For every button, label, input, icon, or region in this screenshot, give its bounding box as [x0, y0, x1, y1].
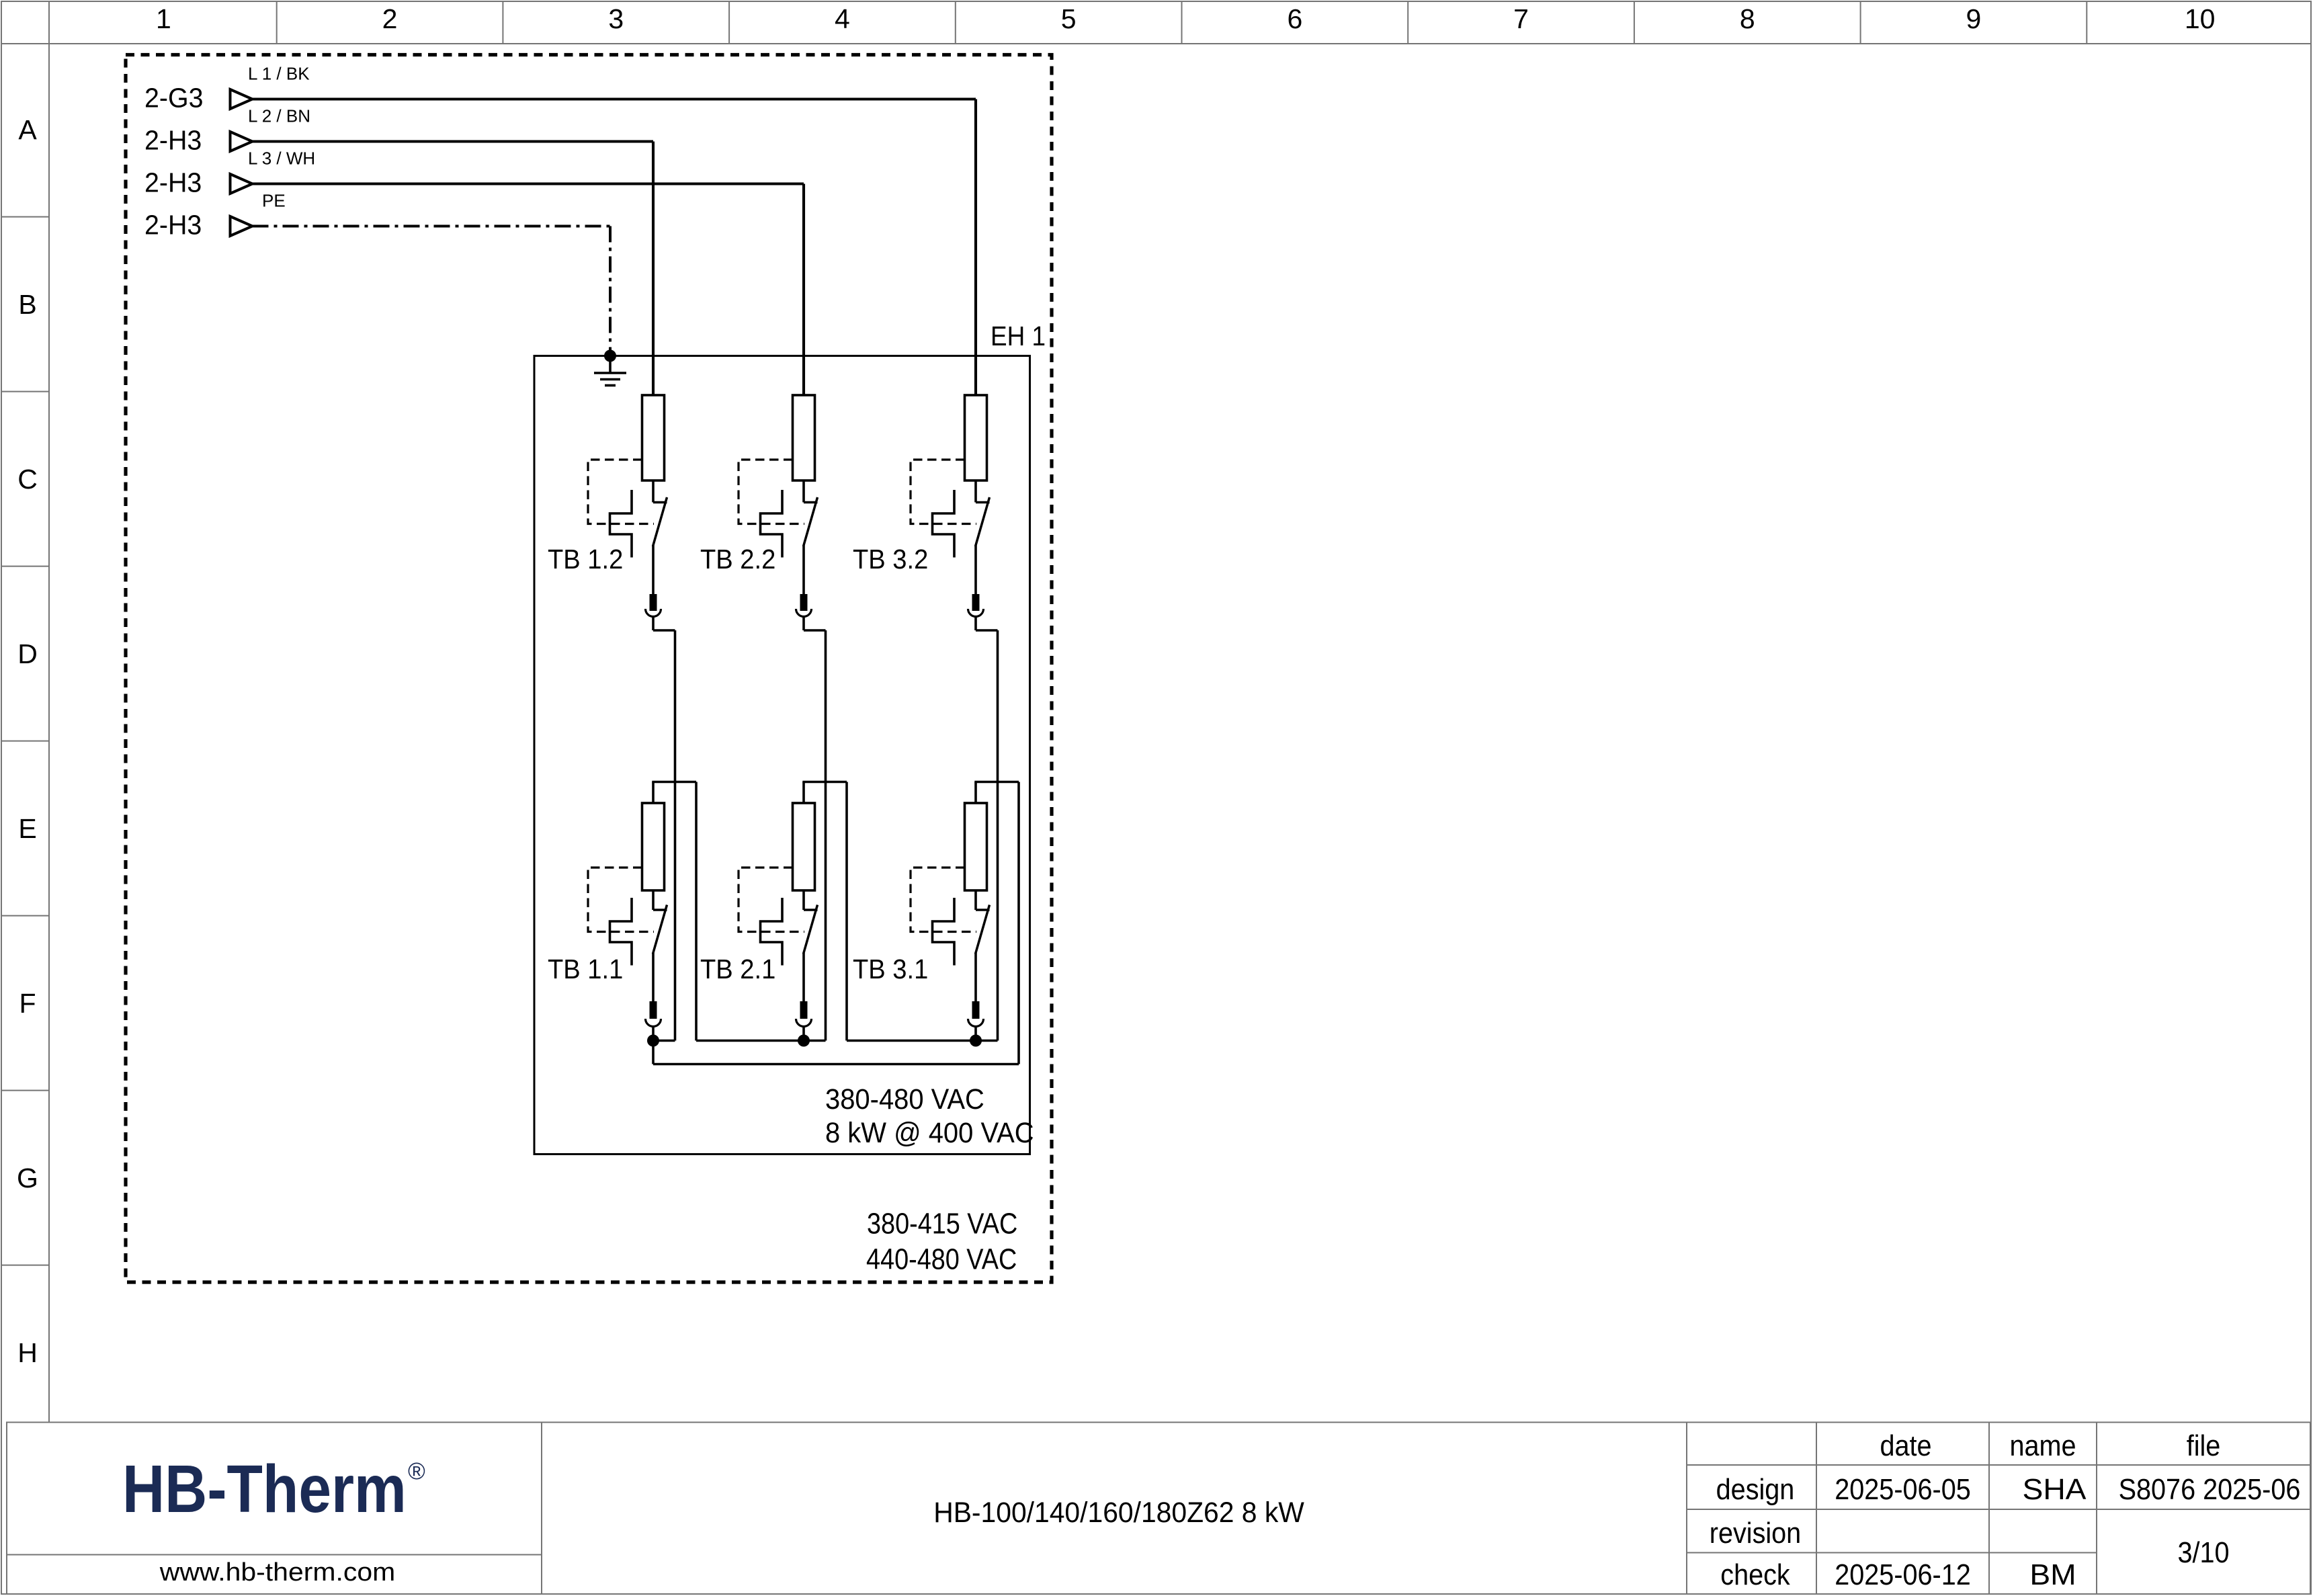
- svg-text:440-480 VAC: 440-480 VAC: [866, 1243, 1017, 1275]
- svg-text:2-H3: 2-H3: [144, 167, 202, 198]
- svg-text:HB-100/140/160/180Z62 8 kW: HB-100/140/160/180Z62 8 kW: [933, 1496, 1304, 1528]
- svg-text:TB 3.1: TB 3.1: [853, 954, 928, 985]
- svg-text:10: 10: [2185, 3, 2216, 34]
- svg-text:EH 1: EH 1: [991, 321, 1046, 351]
- svg-text:D: D: [17, 638, 38, 669]
- svg-text:2: 2: [382, 3, 398, 34]
- svg-text:9: 9: [1966, 3, 1982, 34]
- svg-text:H: H: [17, 1337, 38, 1368]
- svg-text:G: G: [17, 1163, 38, 1193]
- svg-text:TB 2.2: TB 2.2: [700, 544, 775, 575]
- svg-text:380-415 VAC: 380-415 VAC: [867, 1207, 1017, 1240]
- svg-text:B: B: [18, 289, 36, 320]
- svg-text:3/10: 3/10: [2177, 1536, 2229, 1568]
- svg-text:PE: PE: [262, 191, 286, 211]
- svg-text:2025-06-12: 2025-06-12: [1835, 1558, 1971, 1591]
- svg-text:2-H3: 2-H3: [144, 125, 202, 156]
- svg-text:TB 1.1: TB 1.1: [548, 954, 623, 985]
- svg-text:380-480 VAC: 380-480 VAC: [825, 1083, 984, 1115]
- svg-text:A: A: [18, 114, 37, 145]
- svg-text:file: file: [2187, 1429, 2221, 1462]
- svg-text:C: C: [17, 464, 38, 495]
- svg-text:E: E: [18, 813, 36, 844]
- svg-text:®: ®: [408, 1458, 425, 1484]
- svg-text:BM: BM: [2029, 1558, 2076, 1591]
- svg-text:F: F: [19, 988, 36, 1019]
- svg-text:www.hb-therm.com: www.hb-therm.com: [159, 1558, 396, 1586]
- svg-text:HB-Therm: HB-Therm: [122, 1452, 407, 1527]
- svg-text:L 1 / BK: L 1 / BK: [248, 64, 310, 84]
- svg-text:SHA: SHA: [2023, 1472, 2087, 1506]
- svg-text:TB 1.2: TB 1.2: [548, 544, 623, 575]
- svg-text:4: 4: [835, 3, 850, 34]
- svg-text:check: check: [1720, 1558, 1790, 1591]
- svg-text:6: 6: [1287, 3, 1302, 34]
- svg-text:TB 2.1: TB 2.1: [700, 954, 775, 985]
- svg-text:8: 8: [1740, 3, 1755, 34]
- svg-text:S8076 2025-06: S8076 2025-06: [2119, 1472, 2301, 1505]
- svg-text:7: 7: [1513, 3, 1529, 34]
- svg-text:5: 5: [1061, 3, 1077, 34]
- svg-text:2-H3: 2-H3: [144, 210, 202, 241]
- svg-text:L 3 / WH: L 3 / WH: [248, 149, 315, 169]
- svg-text:TB 3.2: TB 3.2: [853, 544, 928, 575]
- svg-text:1: 1: [156, 3, 171, 34]
- svg-text:2-G3: 2-G3: [144, 83, 203, 114]
- svg-text:date: date: [1880, 1429, 1931, 1462]
- svg-text:name: name: [2009, 1429, 2076, 1462]
- svg-text:2025-06-05: 2025-06-05: [1835, 1472, 1971, 1505]
- svg-text:3: 3: [608, 3, 624, 34]
- svg-text:8 kW @ 400 VAC: 8 kW @ 400 VAC: [825, 1117, 1034, 1148]
- svg-text:design: design: [1716, 1472, 1795, 1505]
- svg-text:L 2 / BN: L 2 / BN: [248, 106, 310, 126]
- svg-text:revision: revision: [1710, 1516, 1801, 1549]
